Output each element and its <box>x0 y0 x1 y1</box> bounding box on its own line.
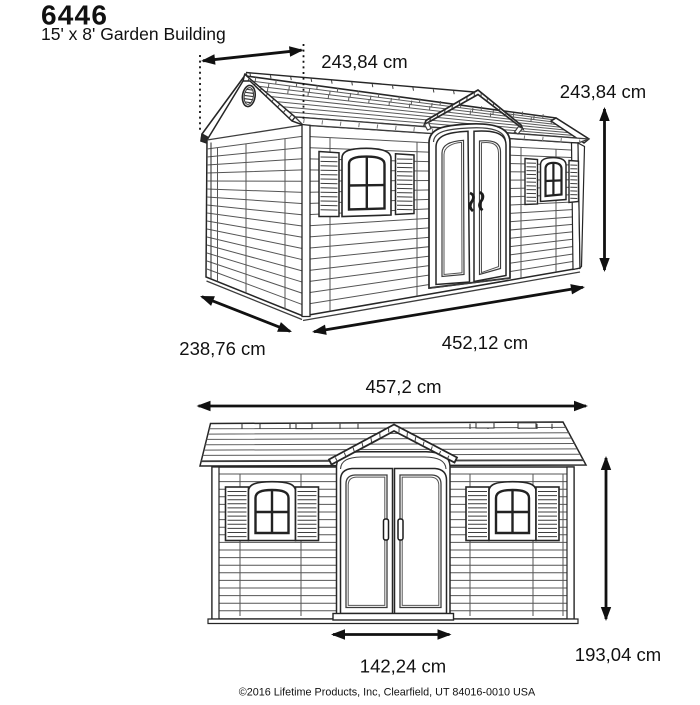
svg-text:15' x 8' Garden Building: 15' x 8' Garden Building <box>41 24 226 44</box>
svg-text:243,84 cm: 243,84 cm <box>321 51 407 72</box>
svg-text:142,24 cm: 142,24 cm <box>360 656 446 677</box>
svg-text:457,2 cm: 457,2 cm <box>365 376 441 397</box>
svg-text:452,12 cm: 452,12 cm <box>442 332 528 353</box>
svg-text:©2016 Lifetime Products, Inc,: ©2016 Lifetime Products, Inc, Clearfield… <box>239 687 536 699</box>
svg-text:193,04 cm: 193,04 cm <box>575 644 661 665</box>
svg-text:243,84 cm: 243,84 cm <box>560 81 646 102</box>
svg-text:238,76 cm: 238,76 cm <box>179 338 265 359</box>
